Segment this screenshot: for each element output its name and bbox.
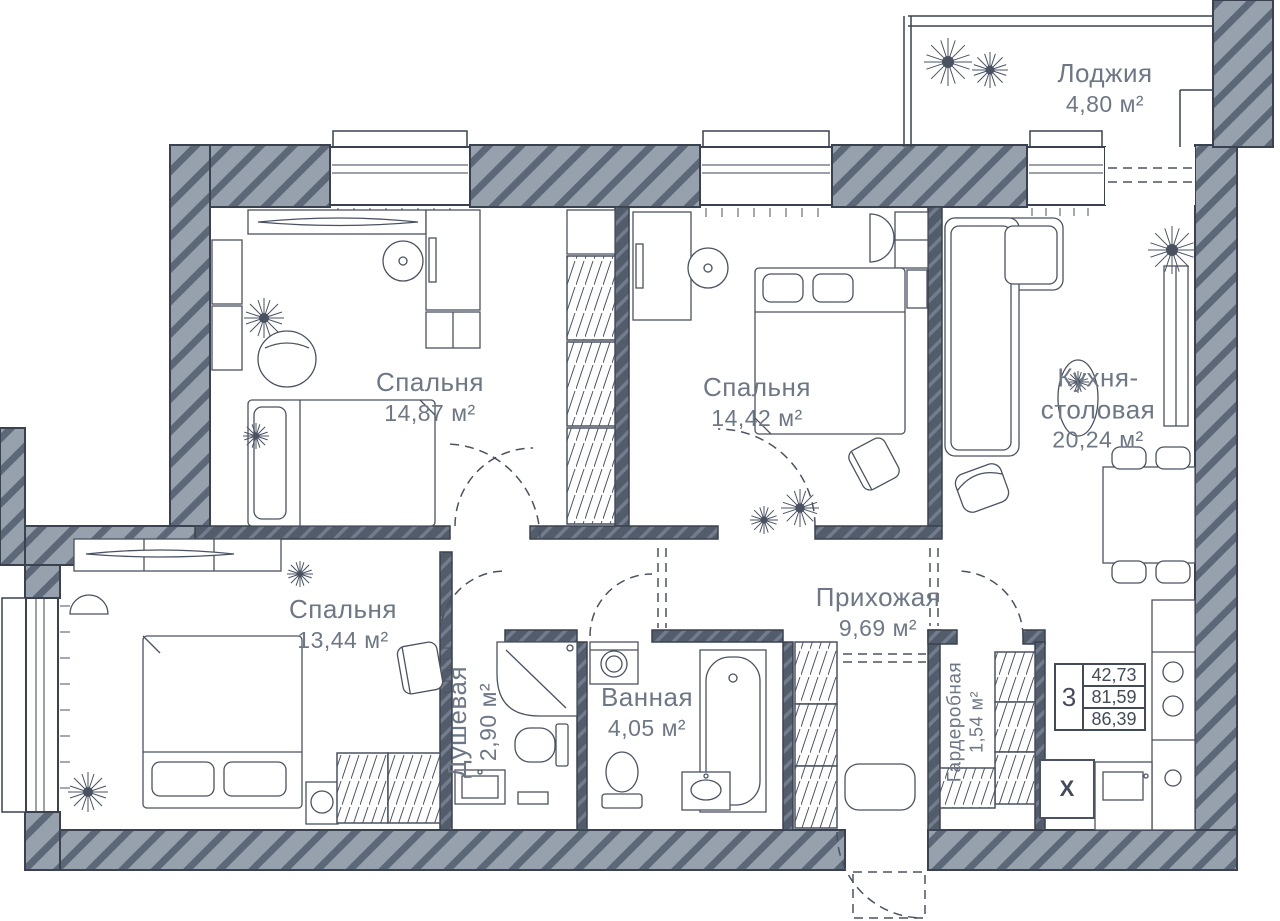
door-arc-closet	[957, 571, 1023, 637]
floor-plan: Лоджия 4,80 м² Спальня 14,87 м² Спальня …	[0, 0, 1280, 921]
chair	[396, 641, 444, 695]
room-label-hallway: Прихожая 9,69 м²	[816, 582, 940, 642]
entrance-porch	[853, 872, 925, 918]
room-name: Прихожая	[816, 582, 940, 614]
nightstand	[907, 270, 927, 308]
balcony-door-opening	[1105, 147, 1195, 205]
room-area: 14,87 м²	[376, 399, 484, 427]
monitor	[429, 238, 436, 282]
opening-entry-zone	[843, 654, 926, 662]
plant-icon	[1148, 226, 1196, 274]
plant-icon	[924, 38, 972, 86]
toilet	[602, 794, 642, 808]
room-name: Кухня-столовая	[1011, 362, 1186, 425]
hob-burner	[1163, 662, 1183, 682]
window-bedroom-2	[703, 131, 829, 147]
chair	[1156, 561, 1190, 583]
door-arc-entrance	[837, 832, 923, 918]
plant-icon	[750, 506, 778, 534]
pillow	[152, 762, 214, 796]
room-name: Гардеробная	[943, 662, 966, 782]
area-summary-box: 3 42,73 81,59 86,39	[1054, 663, 1146, 731]
room-area: 2,90 м²	[474, 666, 502, 778]
total-area-value: 86,39	[1082, 707, 1146, 731]
room-name: Спальня	[376, 367, 484, 399]
hanging-chair	[870, 214, 894, 262]
room-area: 9,69 м²	[816, 614, 940, 642]
room-name: Спальня	[703, 372, 811, 404]
room-area: 4,80 м²	[1057, 90, 1152, 118]
living-area-value: 42,73	[1082, 663, 1146, 687]
room-area: 1,54 м²	[967, 662, 989, 782]
pillow	[763, 274, 803, 302]
plant-icon	[68, 772, 108, 812]
monitor	[636, 244, 643, 288]
pillow	[224, 762, 286, 796]
armchair	[953, 461, 1012, 515]
room-label-kitchen: Кухня-столовая 20,24 м²	[1011, 362, 1186, 453]
floor-area-value: 81,59	[1082, 685, 1146, 709]
window-kitchen	[1030, 131, 1102, 147]
furniture-bedroom-2	[633, 212, 928, 493]
door-arc-bedroom-1	[455, 448, 533, 526]
toilet	[515, 728, 555, 762]
dining-table	[1103, 467, 1195, 563]
room-area: 13,44 м²	[289, 626, 397, 654]
plant-icon	[244, 298, 284, 338]
room-label-shower: Душевая 2,90 м²	[442, 666, 502, 778]
room-label-bedroom-1: Спальня 14,87 м²	[376, 367, 484, 427]
entrance-jambs	[845, 832, 928, 868]
opening-bath-corridor	[658, 548, 666, 628]
mirror	[70, 595, 108, 614]
chair	[1112, 561, 1146, 583]
room-label-bedroom-2: Спальня 14,42 м²	[703, 372, 811, 432]
room-area: 4,05 м²	[601, 714, 693, 742]
window-bedroom-3	[2, 598, 26, 812]
room-name: Лоджия	[1057, 58, 1152, 90]
room-name: Ванная	[601, 682, 693, 714]
window-bedroom-1	[333, 131, 467, 147]
room-label-loggia: Лоджия 4,80 м²	[1057, 58, 1152, 118]
door-arc-bathroom	[590, 574, 652, 636]
pillow	[813, 274, 853, 302]
sink	[1165, 770, 1181, 786]
plant-icon	[972, 52, 1008, 88]
room-label-bedroom-3: Спальня 13,44 м²	[289, 594, 397, 654]
room-name: Спальня	[289, 594, 397, 626]
furniture-entry	[795, 642, 1035, 828]
room-name: Душевая	[442, 666, 474, 778]
room-label-bathroom: Ванная 4,05 м²	[601, 682, 693, 742]
floor-plan-drawing	[0, 0, 1280, 921]
room-label-closet: Гардеробная 1,54 м²	[943, 662, 988, 782]
furniture-bedroom-3	[70, 539, 444, 824]
hob-burner	[1163, 696, 1183, 716]
rug	[518, 792, 548, 804]
plant-icon	[287, 561, 313, 587]
bench	[845, 764, 915, 810]
rooms-count: 3	[1054, 663, 1084, 731]
chair	[846, 435, 902, 493]
door-arc-bedroom-3	[445, 444, 540, 539]
room-area: 20,24 м²	[1011, 426, 1186, 454]
armchair	[258, 331, 316, 387]
pillow	[254, 407, 286, 519]
room-area: 14,42 м²	[703, 404, 811, 432]
washing-machine-marker: X	[1060, 776, 1075, 802]
